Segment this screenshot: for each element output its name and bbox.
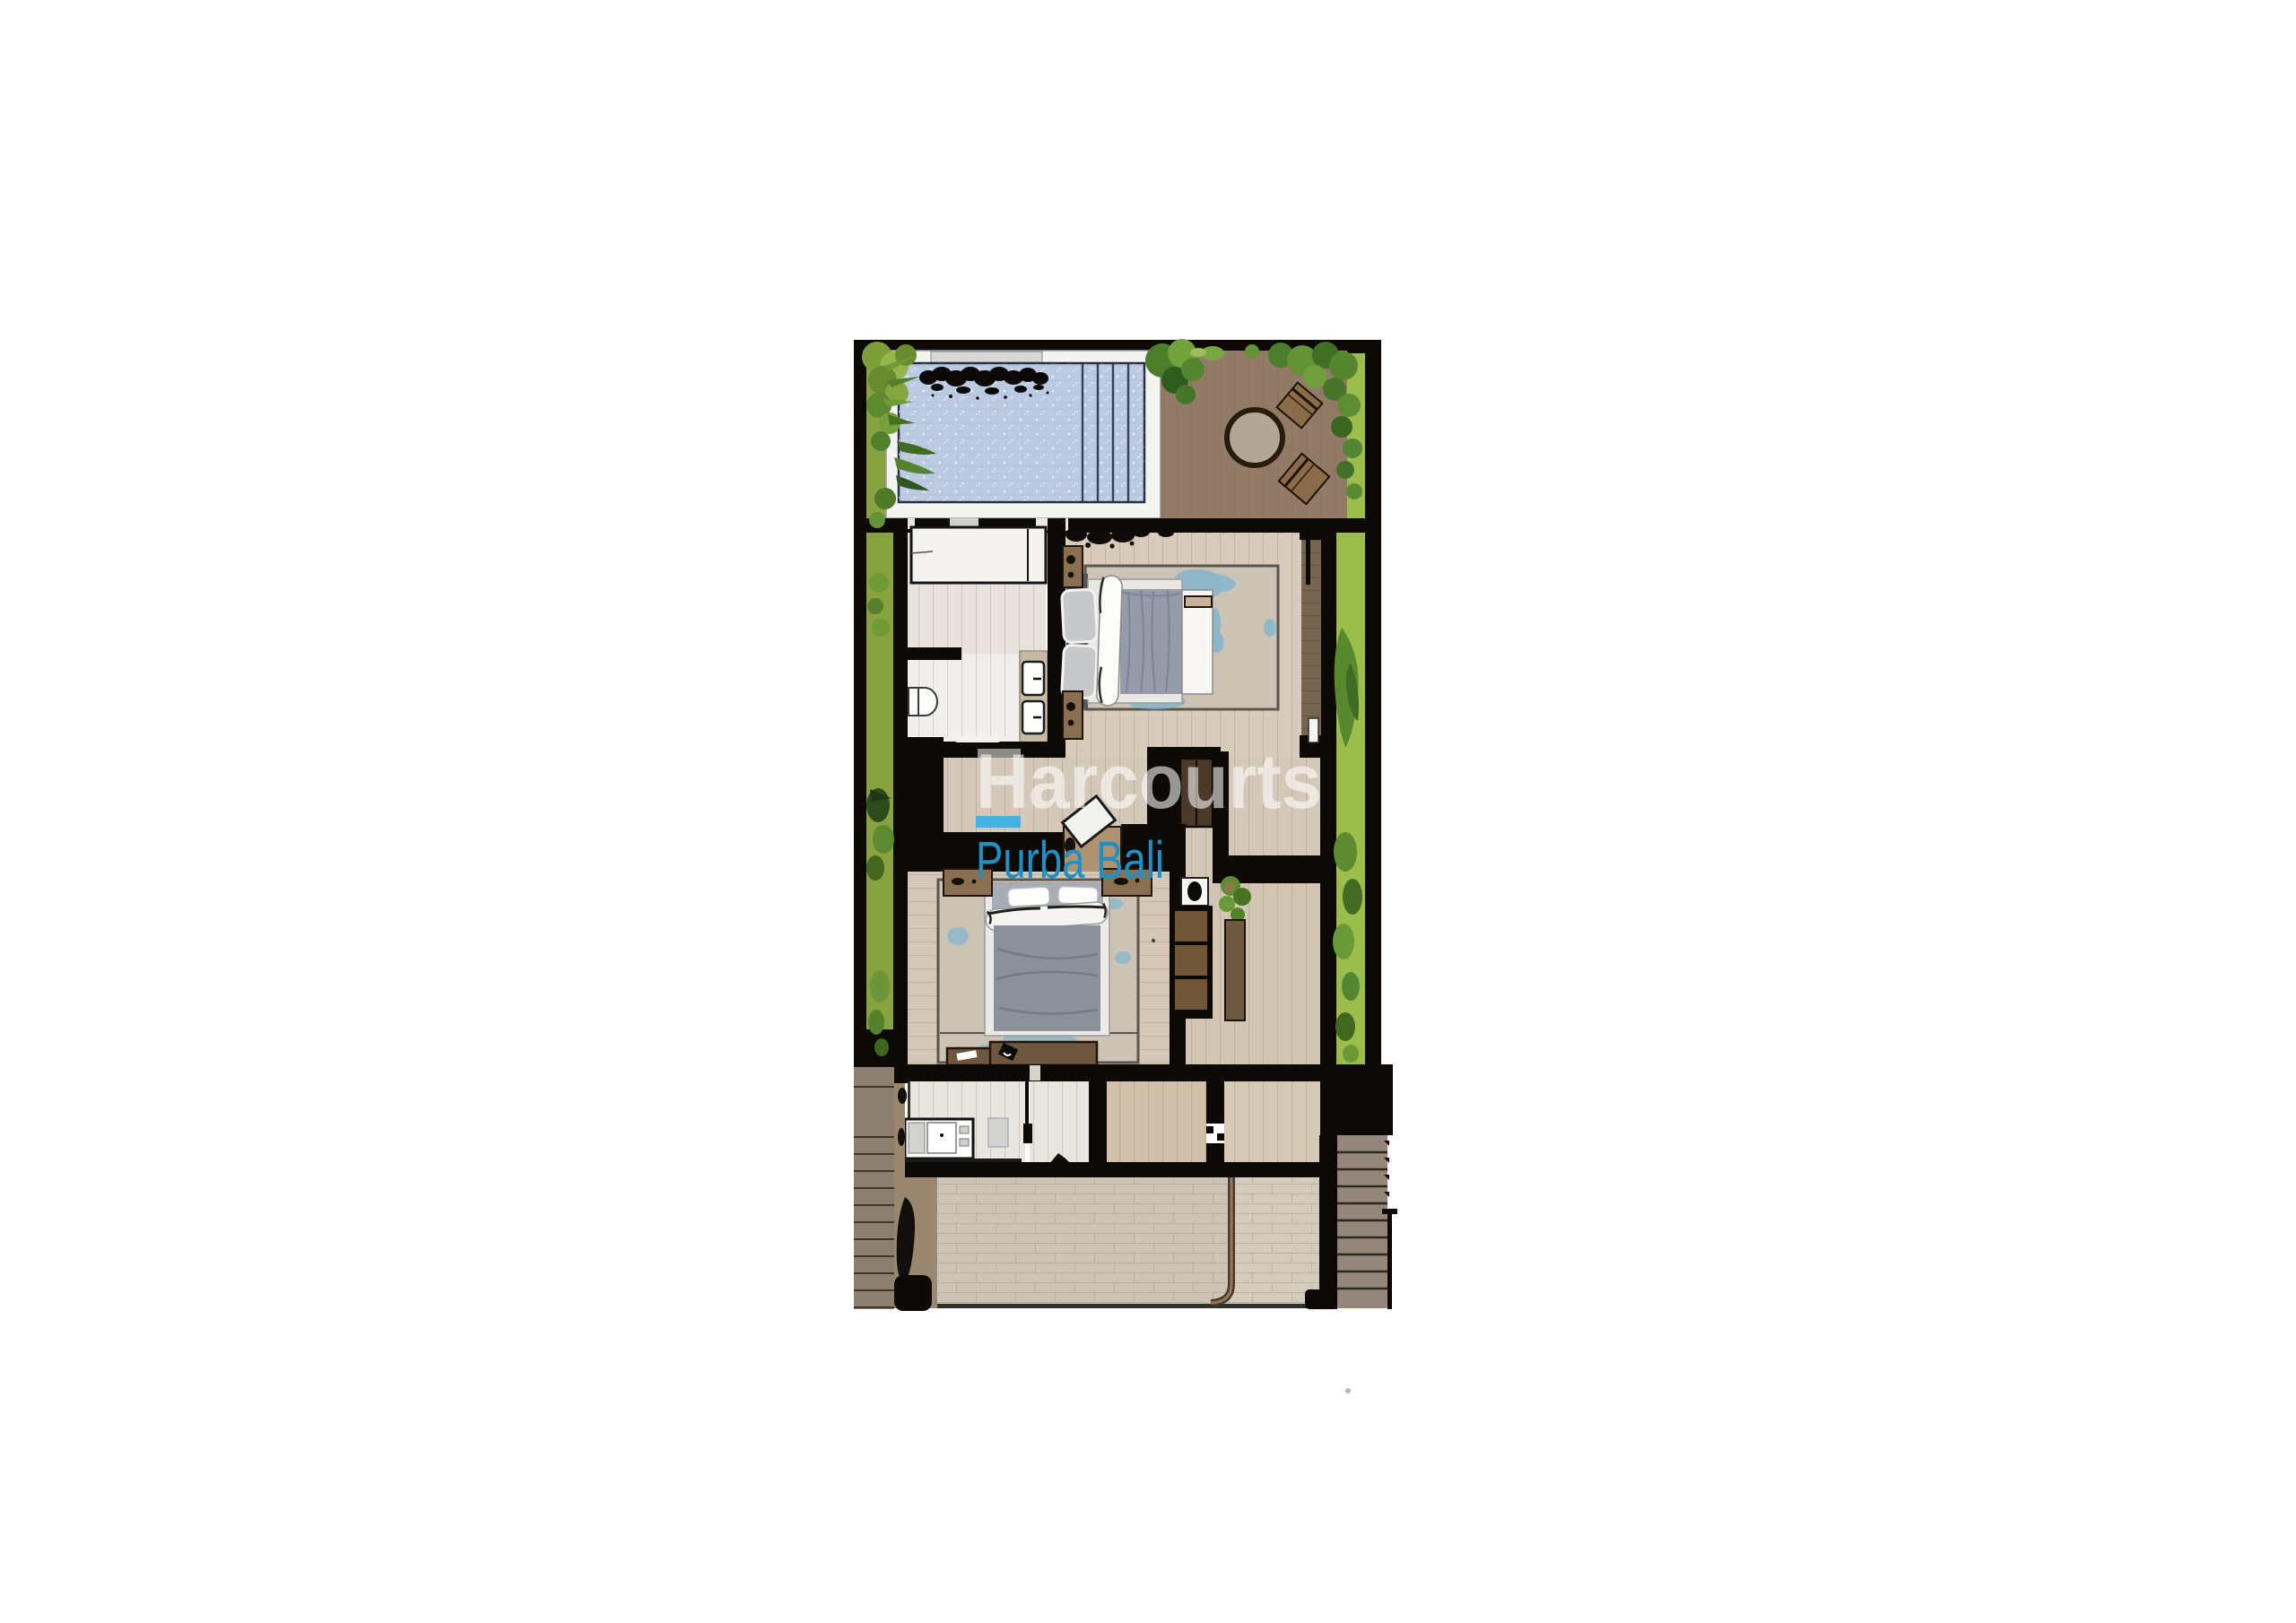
svg-text:Harcourts: Harcourts — [976, 739, 1322, 825]
svg-text:Purba Bali: Purba Bali — [976, 831, 1164, 890]
